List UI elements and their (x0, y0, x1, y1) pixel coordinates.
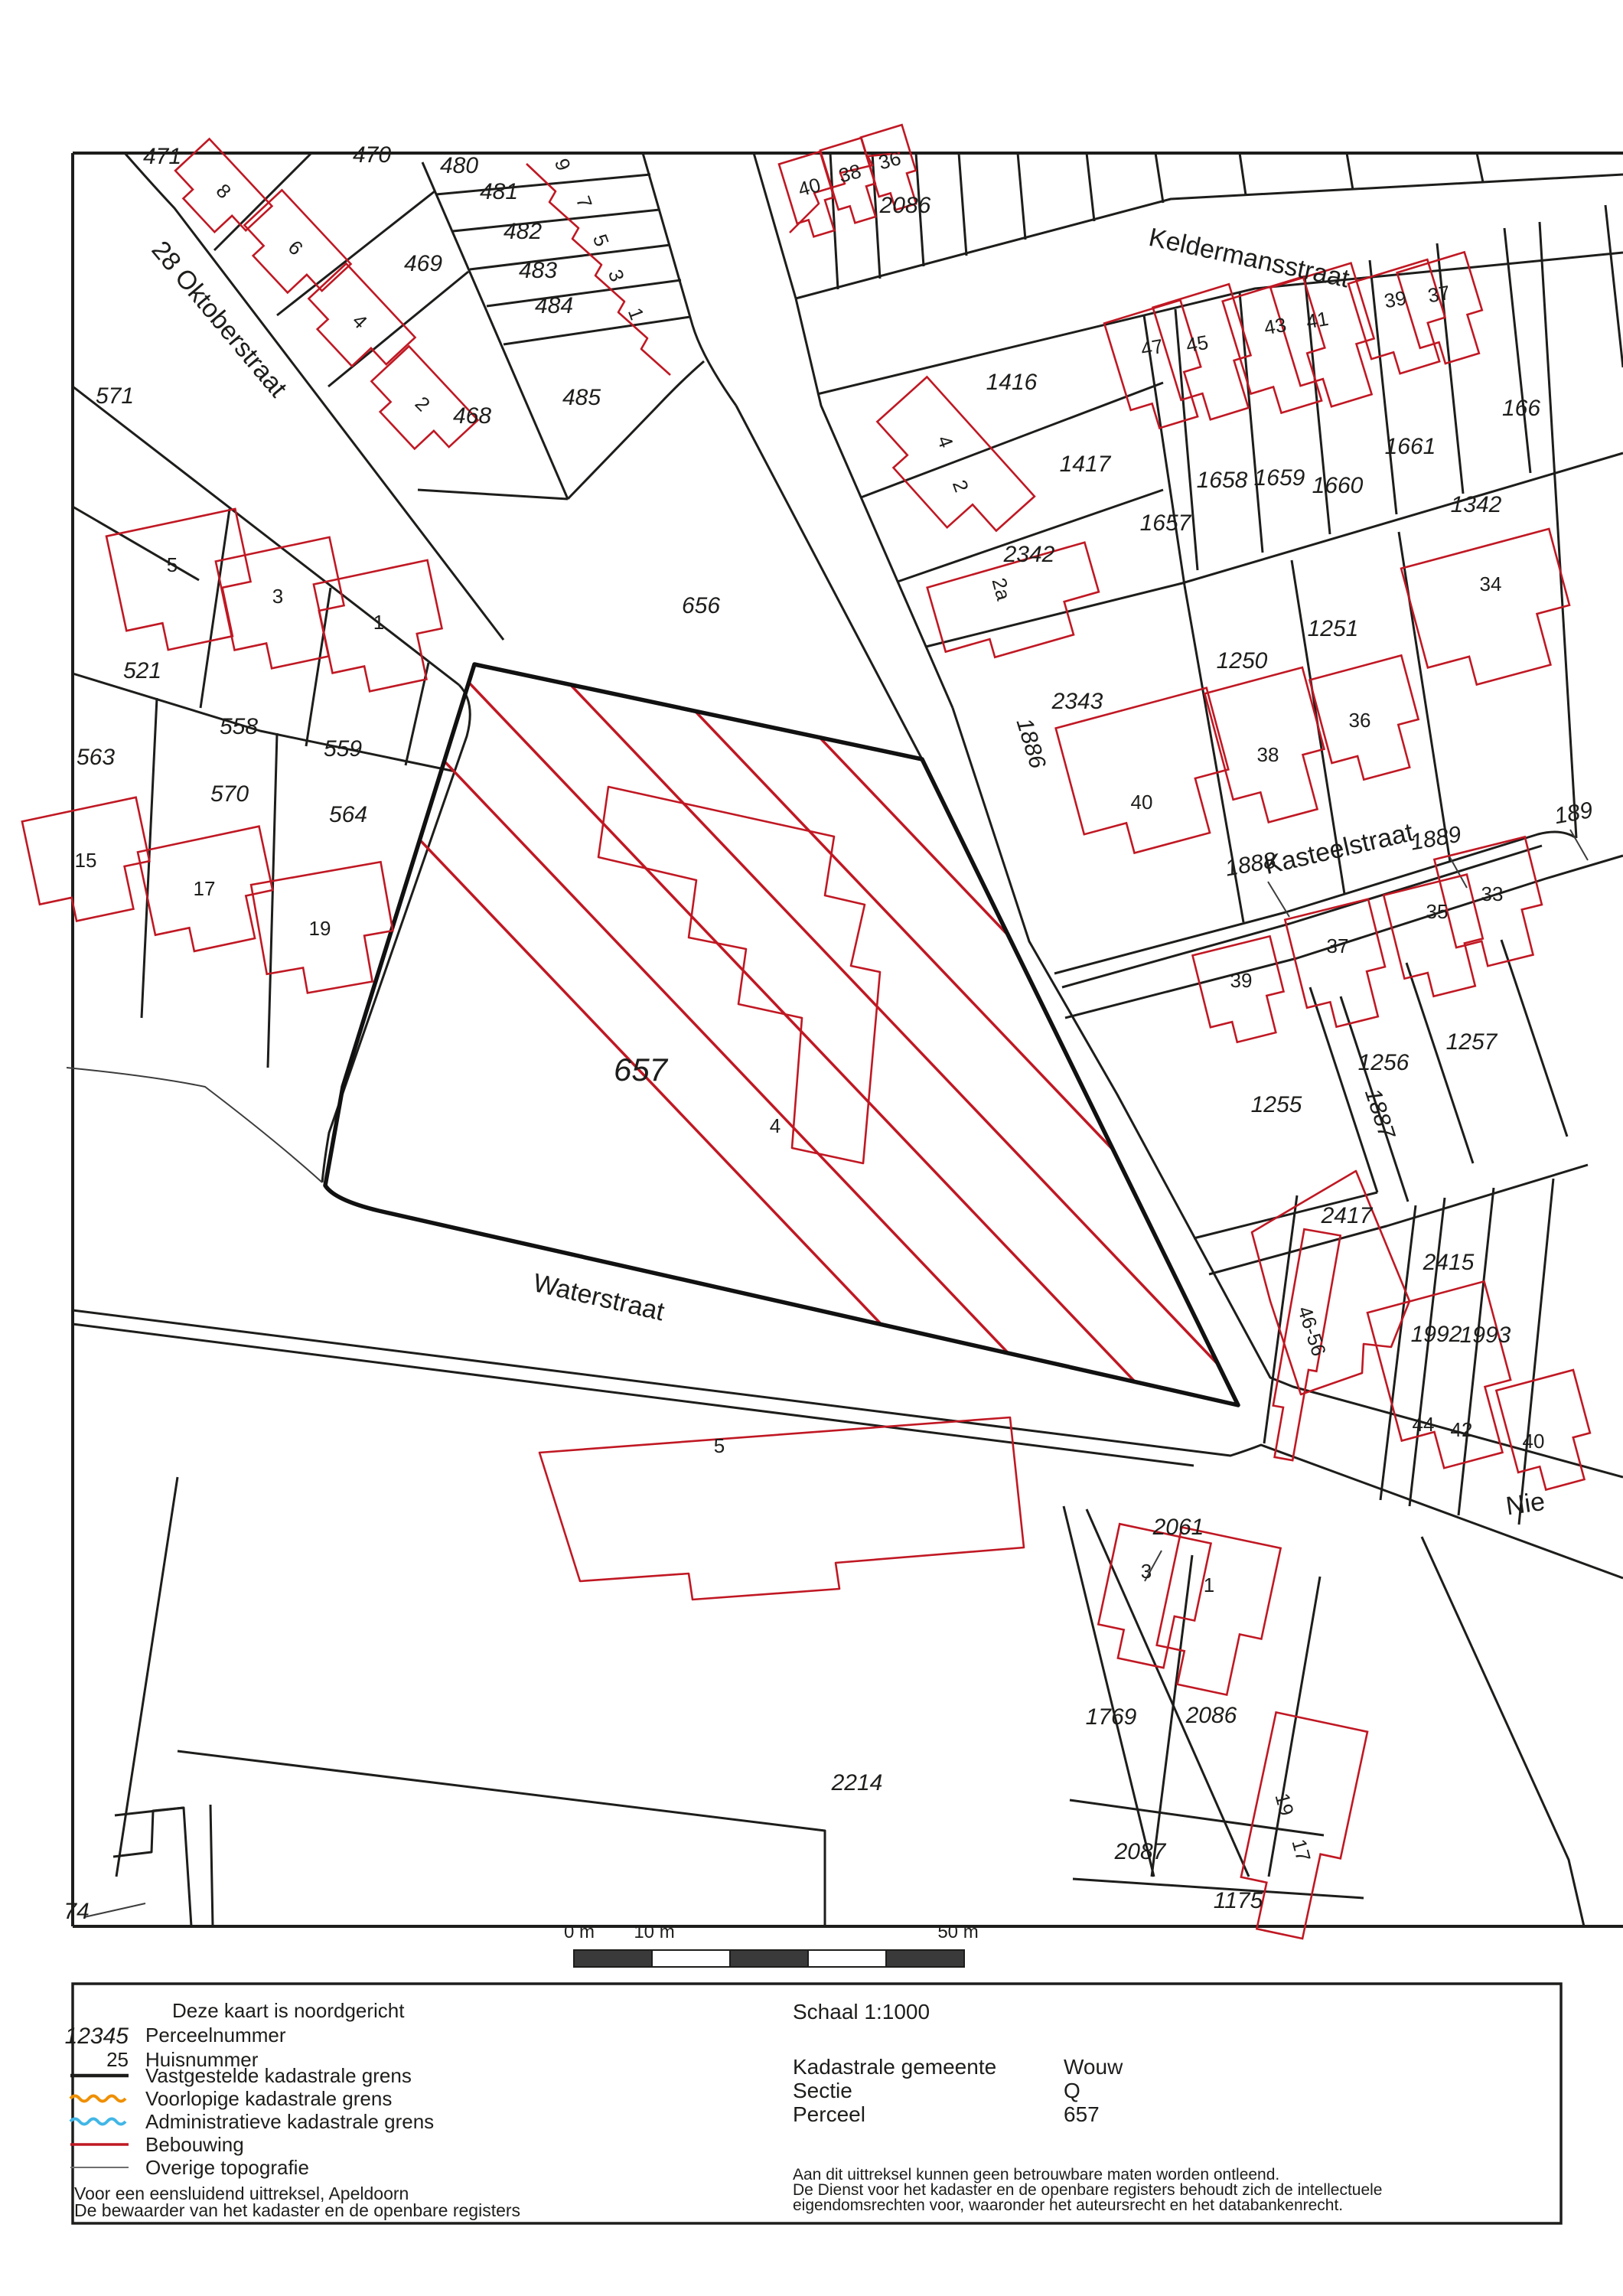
house-number-5: 5 (714, 1434, 725, 1457)
parcel-label-166: 166 (1502, 396, 1540, 421)
house-number-46-56: 46-56 (1293, 1303, 1331, 1359)
building-outline (1098, 1524, 1211, 1668)
building-outline (1104, 300, 1201, 428)
parcel-label-1175: 1175 (1214, 1888, 1263, 1913)
parcel-number-labels: 4714704804814824834844854694685715215585… (64, 142, 1595, 1924)
house-number-34: 34 (1480, 572, 1502, 595)
house-number-38: 38 (836, 159, 864, 187)
legend-item-topografie: Overige topografie (145, 2156, 309, 2179)
house-number-40: 40 (1131, 791, 1153, 814)
house-number-37: 37 (1327, 934, 1349, 957)
house-number-33: 33 (1481, 882, 1504, 905)
house-number-1: 1 (1204, 1574, 1214, 1596)
building-outline (1285, 899, 1385, 1027)
legend-sectie-value: Q (1064, 2079, 1080, 2102)
legend-perceel-label: Perceel (793, 2102, 865, 2126)
house-number-1: 1 (624, 305, 649, 323)
house-number-2: 2 (948, 477, 973, 495)
parcel-label-1251: 1251 (1308, 616, 1359, 641)
house-number-7: 7 (572, 193, 597, 211)
house-number-17: 17 (1287, 1837, 1315, 1864)
parcel-label-74: 74 (64, 1899, 89, 1924)
building-outline (1401, 529, 1569, 685)
house-number-4: 4 (933, 432, 958, 451)
legend-disclaimer-3: eigendomsrechten voor, waaronder het aut… (793, 2197, 1343, 2214)
legend-line-voorlopig (70, 2096, 125, 2102)
building-outline (1157, 1528, 1281, 1695)
parcel-label-2214: 2214 (831, 1770, 883, 1795)
parcel-label-2415: 2415 (1423, 1250, 1475, 1275)
building-outline (877, 377, 1035, 531)
parcel-label-564: 564 (329, 802, 367, 827)
parcel-label-2086: 2086 (879, 193, 931, 218)
house-number-1: 1 (373, 611, 384, 634)
cadastral-boundaries (73, 153, 1623, 1926)
map-canvas: Deze kaart is noordgericht 12345 Perceel… (0, 0, 1623, 2296)
parcel-label-1889: 1889 (1409, 822, 1464, 856)
parcel-label-485: 485 (562, 385, 601, 410)
legend-item-vastgesteld: Vastgestelde kadastrale grens (145, 2064, 412, 2087)
street-name-28-oktoberstraat: 28 Oktoberstraat (145, 236, 292, 403)
house-number-42: 42 (1451, 1418, 1473, 1441)
parcel-label-2417: 2417 (1321, 1203, 1374, 1228)
house-number-5: 5 (588, 231, 614, 249)
house-number-47: 47 (1139, 334, 1165, 361)
scale-bar (574, 1950, 964, 1967)
house-number-45: 45 (1185, 331, 1211, 357)
parcel-label-1659: 1659 (1254, 465, 1305, 491)
parcel-label-2086: 2086 (1185, 1703, 1237, 1728)
parcel-label-468: 468 (453, 403, 491, 429)
street-name-waterstraat: Waterstraat (530, 1268, 667, 1326)
parcel-label-1657: 1657 (1140, 510, 1192, 536)
legend-item-voorlopig: Voorlopige kadastrale grens (145, 2087, 392, 2110)
parcel-label-469: 469 (404, 251, 442, 276)
parcel-label-1256: 1256 (1358, 1050, 1410, 1075)
house-number-2: 2 (411, 392, 435, 416)
house-number-44: 44 (1413, 1413, 1435, 1436)
house-number-35: 35 (1426, 900, 1449, 923)
street-name-nie: Nie (1504, 1487, 1547, 1521)
parcel-label-1886: 1886 (1012, 715, 1051, 771)
parcel-label-470: 470 (353, 142, 391, 168)
house-number-36: 36 (1349, 709, 1371, 732)
parcel-label-2087: 2087 (1114, 1839, 1167, 1864)
building-outline (1348, 259, 1445, 373)
legend-footer2: De bewaarder van het kadaster en de open… (74, 2200, 520, 2220)
parcel-label-484: 484 (535, 293, 573, 318)
legend-schaal: Schaal 1:1000 (793, 2000, 930, 2024)
scale-label-50m: 50 m (937, 1922, 978, 1942)
parcel-label-1658: 1658 (1197, 468, 1248, 493)
house-number-3: 3 (604, 266, 629, 285)
house-number-37: 37 (1426, 281, 1452, 308)
parcel-label-1417: 1417 (1060, 452, 1112, 477)
legend-gemeente-value: Wouw (1064, 2055, 1123, 2079)
street-name-labels: 28 OktoberstraatKeldermansstraatKasteels… (145, 223, 1546, 1521)
legend: Deze kaart is noordgericht 12345 Perceel… (65, 1984, 1561, 2223)
house-number-41: 41 (1305, 307, 1331, 334)
parcel-label-1887: 1887 (1360, 1085, 1400, 1143)
scale-label-0m: 0 m (564, 1922, 595, 1942)
house-number-36: 36 (876, 146, 904, 174)
kadastrale-kaart-page: Deze kaart is noordgericht 12345 Perceel… (0, 0, 1623, 2296)
parcel-label-2342: 2342 (1003, 542, 1055, 567)
house-number-17: 17 (194, 877, 216, 900)
parcel-label-471: 471 (143, 144, 181, 169)
house-number-19: 19 (309, 917, 331, 940)
building-outline (1383, 875, 1483, 996)
parcel-label-656: 656 (682, 593, 720, 618)
parcel-label-2061: 2061 (1152, 1515, 1204, 1540)
parcel-label-1416: 1416 (986, 370, 1038, 395)
legend-item-administratief: Administratieve kadastrale grens (145, 2110, 434, 2133)
parcel-label-571: 571 (96, 383, 134, 409)
parcel-label-563: 563 (77, 745, 115, 770)
parcel-label-559: 559 (324, 736, 362, 762)
legend-gemeente-label: Kadastrale gemeente (793, 2055, 996, 2079)
house-number-3: 3 (1141, 1560, 1152, 1583)
parcel-label-480: 480 (440, 153, 478, 178)
parcel-label-1257: 1257 (1446, 1029, 1498, 1055)
house-number-38: 38 (1257, 743, 1279, 766)
house-number-40: 40 (1523, 1430, 1545, 1453)
parcel-label-1255: 1255 (1251, 1092, 1302, 1117)
parcel-label-482: 482 (504, 219, 542, 244)
parcel-label-483: 483 (519, 258, 557, 283)
building-outline (106, 509, 251, 650)
legend-north-note: Deze kaart is noordgericht (172, 1999, 405, 2022)
house-number-43: 43 (1263, 313, 1289, 340)
house-number-15: 15 (75, 849, 97, 872)
house-number-9: 9 (550, 155, 575, 174)
parcel-label-189: 189 (1553, 797, 1595, 829)
parcel-label-1769: 1769 (1086, 1704, 1137, 1730)
parcel-657-outline (325, 664, 1238, 1405)
parcel-label-657: 657 (614, 1052, 669, 1088)
parcel-label-558: 558 (220, 714, 258, 739)
parcel-label-1661: 1661 (1385, 434, 1436, 459)
legend-sectie-label: Sectie (793, 2079, 852, 2102)
legend-item-bebouwing: Bebouwing (145, 2133, 244, 2156)
parcel-label-521: 521 (123, 658, 161, 683)
street-name-kasteelstraat: Kasteelstraat (1262, 817, 1416, 880)
house-number-6: 6 (284, 236, 308, 259)
house-number-39: 39 (1230, 969, 1253, 992)
legend-sample-parcel: 12345 (65, 2024, 129, 2049)
legend-line-administratief (70, 2119, 125, 2125)
house-number-19: 19 (1270, 1791, 1298, 1818)
parcel-label-1992: 1992 (1411, 1322, 1462, 1347)
house-number-40: 40 (796, 173, 823, 201)
parcel-label-1250: 1250 (1217, 648, 1268, 673)
parcel-label-481: 481 (480, 179, 518, 204)
legend-sample-house: 25 (106, 2048, 129, 2071)
house-number-5: 5 (167, 553, 178, 576)
house-number-3: 3 (272, 585, 283, 608)
building-outlines (22, 125, 1590, 1939)
parcel-label-2343: 2343 (1051, 689, 1103, 714)
parcel-label-1342: 1342 (1451, 492, 1502, 517)
parcel-label-570: 570 (210, 781, 249, 807)
map-frame (73, 153, 1623, 1926)
house-number-8: 8 (212, 179, 236, 203)
house-number-labels: 864297531403836474543413937422a531151719… (75, 146, 1545, 1864)
legend-perceel-value: 657 (1064, 2102, 1100, 2126)
parcel-label-1660: 1660 (1312, 473, 1364, 498)
legend-parcel-label: Perceelnummer (145, 2024, 286, 2047)
house-number-39: 39 (1383, 286, 1409, 313)
parcel-label-1993: 1993 (1460, 1322, 1511, 1348)
street-name-keldermansstraat: Keldermansstraat (1146, 223, 1352, 294)
house-number-2a: 2a (987, 576, 1015, 603)
house-number-4: 4 (348, 309, 372, 333)
house-number-4: 4 (770, 1114, 781, 1137)
scale-label-10m: 10 m (634, 1922, 674, 1942)
